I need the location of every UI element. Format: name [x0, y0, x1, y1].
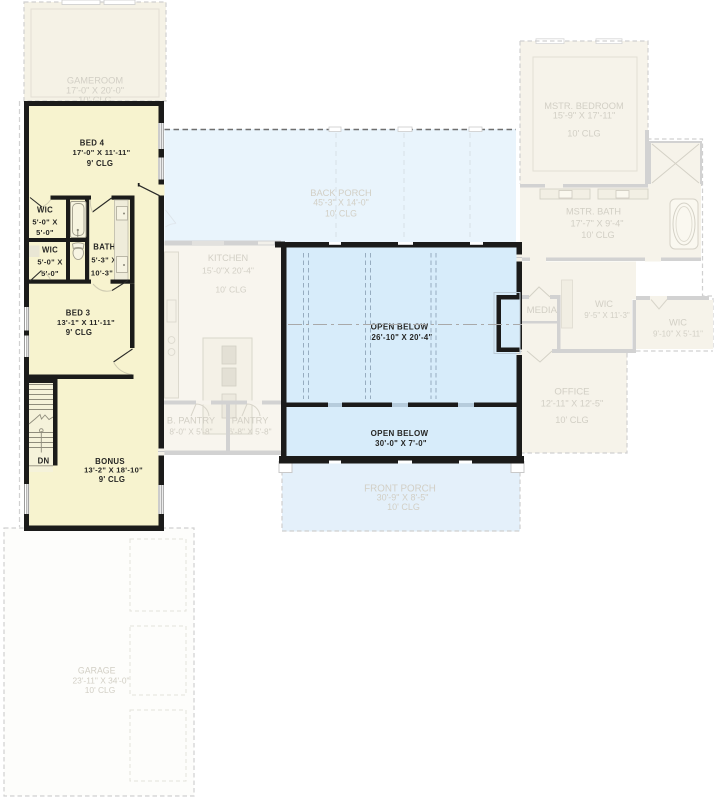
svg-text:9'-5" X 11'-3": 9'-5" X 11'-3"	[584, 311, 630, 320]
svg-text:10'-3": 10'-3"	[91, 269, 113, 278]
svg-text:17'-0" X 11'-11": 17'-0" X 11'-11"	[72, 148, 130, 157]
svg-text:10' CLG: 10' CLG	[325, 209, 357, 219]
svg-text:WIC: WIC	[42, 246, 58, 255]
svg-text:BED 4: BED 4	[80, 139, 105, 148]
svg-text:5'-3" X: 5'-3" X	[91, 256, 116, 265]
svg-text:WIC: WIC	[37, 206, 53, 215]
svg-text:B. PANTRY: B. PANTRY	[167, 416, 215, 426]
svg-text:PANTRY: PANTRY	[232, 416, 269, 426]
svg-text:BONUS: BONUS	[95, 457, 125, 466]
svg-text:5'-0" X: 5'-0" X	[32, 218, 57, 227]
svg-text:WIC: WIC	[669, 318, 687, 328]
svg-text:OPEN BELOW: OPEN BELOW	[371, 323, 429, 332]
svg-text:9'-10" X 5'-11": 9'-10" X 5'-11"	[653, 330, 703, 339]
svg-text:13'-1" X 11'-11": 13'-1" X 11'-11"	[57, 318, 115, 327]
svg-text:15'-0"X 20'-4": 15'-0"X 20'-4"	[202, 266, 254, 276]
svg-text:GAMEROOM: GAMEROOM	[67, 76, 123, 86]
svg-text:45'-3" X 14'-0": 45'-3" X 14'-0"	[313, 198, 369, 208]
svg-text:MSTR. BEDROOM: MSTR. BEDROOM	[544, 101, 624, 111]
svg-text:9' CLG: 9' CLG	[87, 159, 114, 168]
svg-text:17'-7" X 9'-4": 17'-7" X 9'-4"	[571, 218, 624, 228]
svg-text:DN: DN	[38, 457, 50, 466]
svg-text:13'-2" X 18'-10": 13'-2" X 18'-10"	[84, 466, 143, 475]
svg-text:10' CLG: 10' CLG	[567, 129, 600, 139]
svg-text:10' CLG: 10' CLG	[85, 685, 115, 695]
svg-text:OFFICE: OFFICE	[554, 387, 589, 398]
svg-text:5'-0" X: 5'-0" X	[37, 258, 62, 267]
svg-text:10' CLG: 10' CLG	[581, 230, 614, 240]
svg-text:10' CLG: 10' CLG	[215, 285, 247, 295]
svg-text:GARAGE: GARAGE	[78, 666, 116, 676]
svg-text:BACK PORCH: BACK PORCH	[310, 188, 371, 198]
svg-text:9' CLG: 9' CLG	[66, 328, 93, 337]
svg-text:9' CLG: 9' CLG	[99, 475, 126, 484]
svg-text:WIC: WIC	[595, 299, 613, 309]
svg-text:KITCHEN: KITCHEN	[208, 253, 248, 263]
svg-text:10' CLG: 10' CLG	[387, 502, 420, 512]
svg-text:26'-10" X 20'-4": 26'-10" X 20'-4"	[372, 333, 433, 342]
svg-text:12'-11" X 12'-5": 12'-11" X 12'-5"	[541, 399, 603, 409]
svg-text:MSTR. BATH: MSTR. BATH	[566, 207, 621, 217]
svg-text:BED 3: BED 3	[66, 309, 91, 318]
svg-text:15'-9" X 17'-11": 15'-9" X 17'-11"	[553, 111, 615, 121]
svg-text:8'-0" X 5'-8": 8'-0" X 5'-8"	[169, 427, 212, 437]
svg-text:30'-0" X 7'-0": 30'-0" X 7'-0"	[375, 439, 427, 448]
svg-text:MEDIA: MEDIA	[527, 305, 558, 316]
svg-text:10' CLG: 10' CLG	[555, 415, 588, 425]
svg-text:17'-0" X 20'-0": 17'-0" X 20'-0"	[66, 86, 124, 96]
svg-text:6'-8" X 5'-8": 6'-8" X 5'-8"	[228, 427, 271, 437]
svg-text:5'-0": 5'-0"	[36, 228, 54, 237]
svg-text:5'-0": 5'-0"	[41, 269, 59, 278]
svg-text:OPEN BELOW: OPEN BELOW	[371, 429, 429, 438]
